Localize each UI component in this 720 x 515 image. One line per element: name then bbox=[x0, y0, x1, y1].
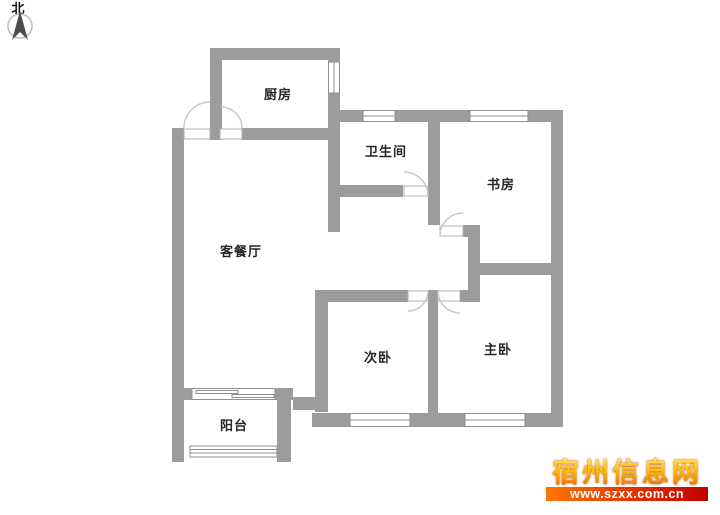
balcony-railing bbox=[190, 446, 277, 457]
wall-hall-bottom bbox=[318, 290, 408, 302]
wall-bedroom-divider bbox=[428, 290, 438, 423]
wall-master-door-stub bbox=[460, 290, 470, 302]
compass: 北 bbox=[8, 1, 32, 40]
site-watermark: 宿州信息网 www.szxx.com.cn bbox=[542, 455, 712, 507]
wall-kitchen-left bbox=[210, 48, 222, 140]
wall-bathroom-bottom bbox=[340, 185, 403, 197]
watermark-url-banner: www.szxx.com.cn bbox=[546, 487, 708, 501]
sliding-door-panel-2 bbox=[232, 395, 274, 398]
floor-plan-drawing: 北 bbox=[0, 0, 720, 515]
master-bedroom-door-leaf bbox=[438, 291, 460, 301]
floor-plan-canvas: 北 bbox=[0, 0, 720, 515]
wall-living-bottom-jog bbox=[293, 397, 328, 410]
wall-study-bottom bbox=[480, 263, 551, 275]
wall-right-outer bbox=[551, 110, 563, 427]
room-label-living-dining: 客餐厅 bbox=[220, 244, 262, 259]
wall-left-outer bbox=[172, 128, 184, 462]
room-label-balcony: 阳台 bbox=[220, 418, 248, 433]
balcony-railing-frame bbox=[190, 446, 277, 457]
wall-balcony-right bbox=[277, 388, 291, 462]
wall-kitchen-top bbox=[210, 48, 340, 60]
room-label-kitchen: 厨房 bbox=[264, 87, 292, 102]
wall-kitchen-bottom bbox=[242, 128, 328, 140]
room-label-secondary-bedroom: 次卧 bbox=[364, 350, 392, 365]
wall-secondary-bedroom-left bbox=[315, 290, 328, 412]
study-door-leaf bbox=[440, 226, 463, 236]
wall-balcony-top-left-stub bbox=[176, 388, 193, 400]
entry-door-swing-arc bbox=[184, 102, 210, 128]
entry-door-leaf bbox=[184, 129, 210, 139]
balcony-sliding-door bbox=[192, 389, 275, 400]
sliding-door-panel-1 bbox=[196, 391, 238, 394]
secondary-bedroom-door-leaf bbox=[408, 291, 428, 301]
room-label-master-bedroom: 主卧 bbox=[484, 342, 512, 357]
kitchen-door-swing-arc bbox=[221, 107, 242, 128]
wall-bathroom-study-divider bbox=[428, 122, 440, 225]
room-label-bathroom: 卫生间 bbox=[365, 144, 407, 159]
room-label-study: 书房 bbox=[487, 177, 515, 192]
bathroom-door-leaf bbox=[404, 186, 428, 196]
watermark-site-name: 宿州信息网 bbox=[542, 451, 712, 490]
kitchen-door-leaf bbox=[220, 129, 242, 139]
